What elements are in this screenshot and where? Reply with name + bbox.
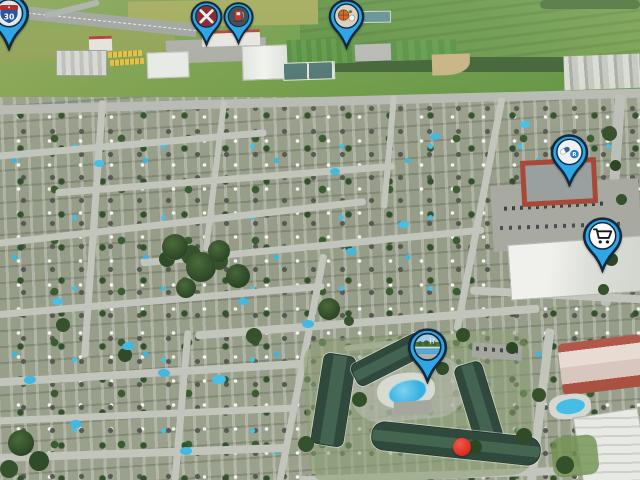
tree-cluster (56, 318, 70, 332)
tree-cluster (246, 328, 262, 344)
aerial-map[interactable]: 30 (0, 0, 640, 480)
backyard-pool (330, 168, 340, 175)
tennis-courts (283, 61, 336, 81)
apartment-building (557, 334, 640, 396)
subject-property-marker[interactable] (453, 438, 471, 456)
tree-cluster (532, 388, 546, 402)
tree-cluster (318, 298, 340, 320)
poi-pin-pharmacy[interactable]: R (549, 134, 590, 187)
tree-cluster (506, 342, 518, 354)
school-building (147, 51, 190, 78)
poi-pin-grocery[interactable] (581, 217, 624, 273)
poi-pin-restaurant[interactable] (189, 1, 224, 47)
tree-cluster (118, 348, 132, 362)
tree-row (602, 126, 617, 141)
tree-cluster (556, 456, 574, 474)
poi-pin-gas-station[interactable] (222, 2, 255, 45)
backyard-pool (52, 298, 63, 305)
backyard-pool (180, 447, 192, 455)
pharmacy-r-letter: R (572, 152, 576, 158)
new-development (563, 54, 640, 91)
tree-cluster (8, 430, 34, 456)
poi-pin-highway[interactable]: 30 (0, 0, 31, 51)
tree-cluster (298, 436, 314, 452)
backyard-pool (520, 121, 530, 128)
treeline-top-right (540, 0, 640, 9)
backyard-pool (94, 160, 104, 167)
poi-pin-sports[interactable] (327, 0, 366, 50)
tree-cluster (226, 264, 250, 288)
tree-cluster (176, 278, 196, 298)
tree-cluster (208, 240, 230, 262)
tree-cluster (352, 392, 367, 407)
backyard-pool (398, 221, 409, 228)
condo-parking (394, 400, 433, 416)
poi-pin-pool-park[interactable] (406, 328, 449, 384)
backyard-pool (430, 133, 440, 140)
highway-shield-number: 30 (4, 13, 15, 22)
lawn-patch (550, 434, 600, 479)
tree-cluster (456, 328, 470, 342)
backyard-pool (302, 320, 314, 328)
tree-cluster (516, 428, 532, 444)
industrial-building (56, 50, 107, 76)
tree-cluster (162, 234, 188, 260)
